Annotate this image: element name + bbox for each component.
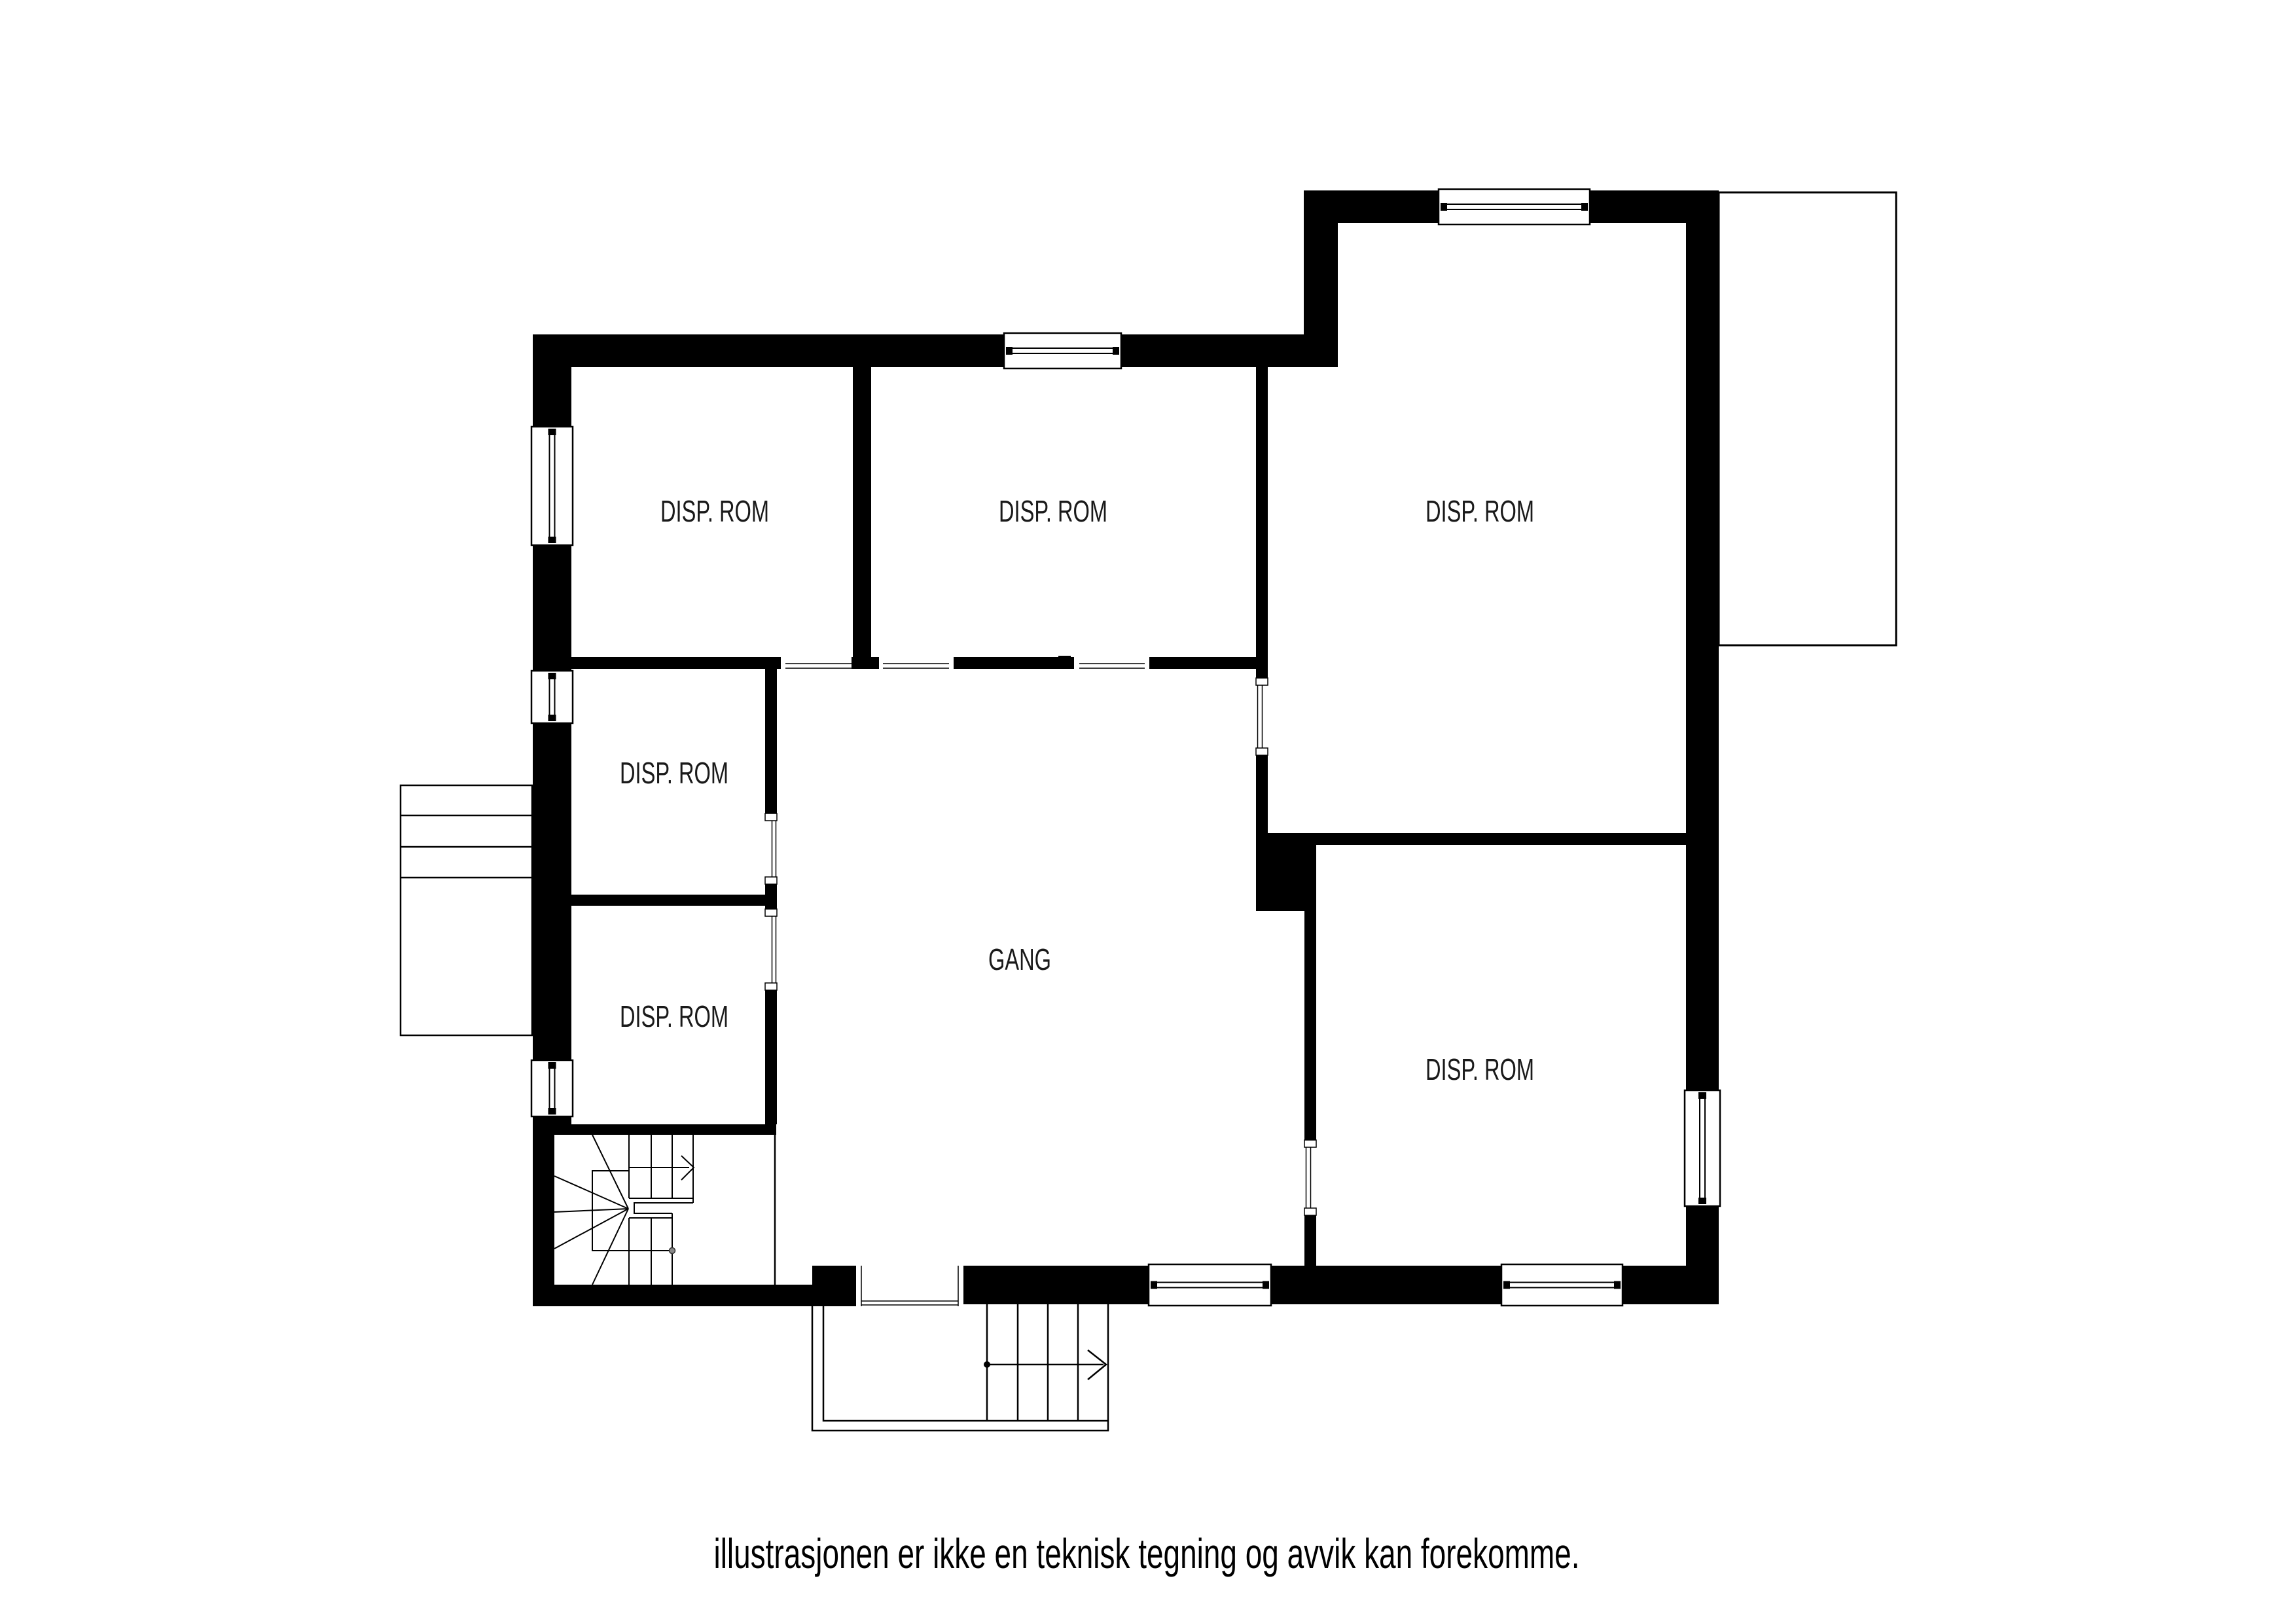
svg-text:DISP. ROM: DISP. ROM (1426, 494, 1534, 528)
svg-text:GANG: GANG (988, 942, 1051, 976)
svg-text:DISP. ROM: DISP. ROM (620, 756, 728, 790)
svg-text:illustrasjonen er ikke en tekn: illustrasjonen er ikke en teknisk tegnin… (714, 1530, 1580, 1577)
svg-text:DISP. ROM: DISP. ROM (620, 999, 728, 1033)
svg-text:DISP. ROM: DISP. ROM (999, 494, 1107, 528)
svg-text:DISP. ROM: DISP. ROM (1426, 1052, 1534, 1086)
svg-text:DISP. ROM: DISP. ROM (660, 494, 769, 528)
